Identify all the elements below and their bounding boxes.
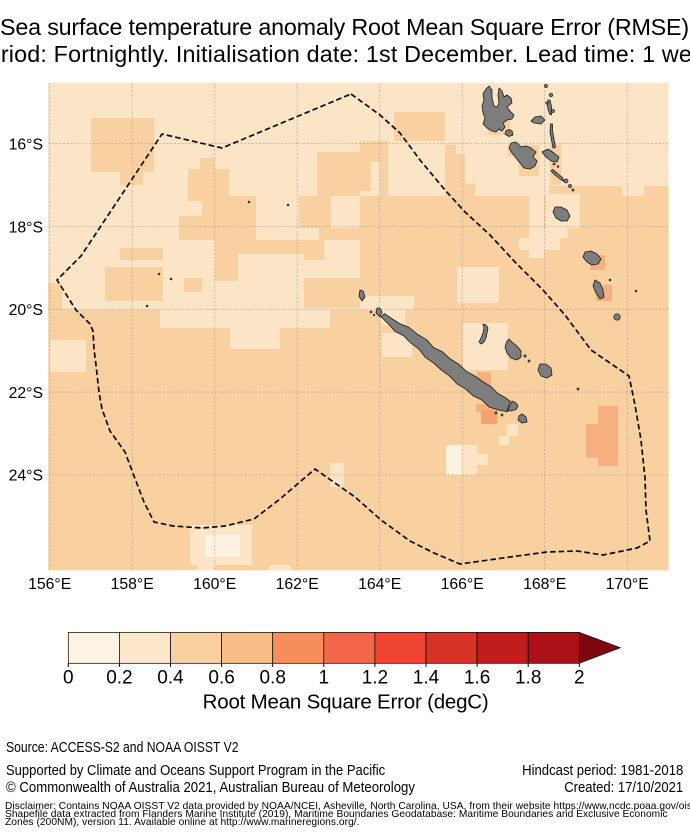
svg-text:0.8: 0.8 — [259, 667, 285, 688]
svg-text:0: 0 — [63, 667, 74, 688]
svg-text:18°S: 18°S — [9, 219, 43, 236]
svg-text:0.2: 0.2 — [106, 667, 132, 688]
svg-text:1: 1 — [319, 667, 330, 688]
svg-text:170°E: 170°E — [606, 576, 649, 593]
svg-text:164°E: 164°E — [358, 576, 401, 593]
svg-text:Root Mean Square Error (degC): Root Mean Square Error (degC) — [203, 691, 489, 714]
svg-text:22°S: 22°S — [9, 385, 43, 402]
svg-text:24°S: 24°S — [9, 468, 43, 485]
svg-text:1.6: 1.6 — [464, 667, 490, 688]
svg-text:0.4: 0.4 — [157, 667, 184, 688]
svg-text:162°E: 162°E — [276, 576, 319, 593]
svg-text:160°E: 160°E — [193, 576, 236, 593]
svg-text:166°E: 166°E — [441, 576, 484, 593]
svg-text:168°E: 168°E — [523, 576, 566, 593]
svg-text:20°S: 20°S — [9, 302, 43, 319]
svg-text:1.4: 1.4 — [413, 667, 440, 688]
svg-text:0.6: 0.6 — [208, 667, 234, 688]
svg-text:1.2: 1.2 — [362, 667, 388, 688]
svg-text:2: 2 — [574, 667, 585, 688]
svg-text:1.8: 1.8 — [515, 667, 541, 688]
svg-text:158°E: 158°E — [111, 576, 154, 593]
svg-text:16°S: 16°S — [9, 137, 43, 154]
svg-text:156°E: 156°E — [28, 576, 71, 593]
